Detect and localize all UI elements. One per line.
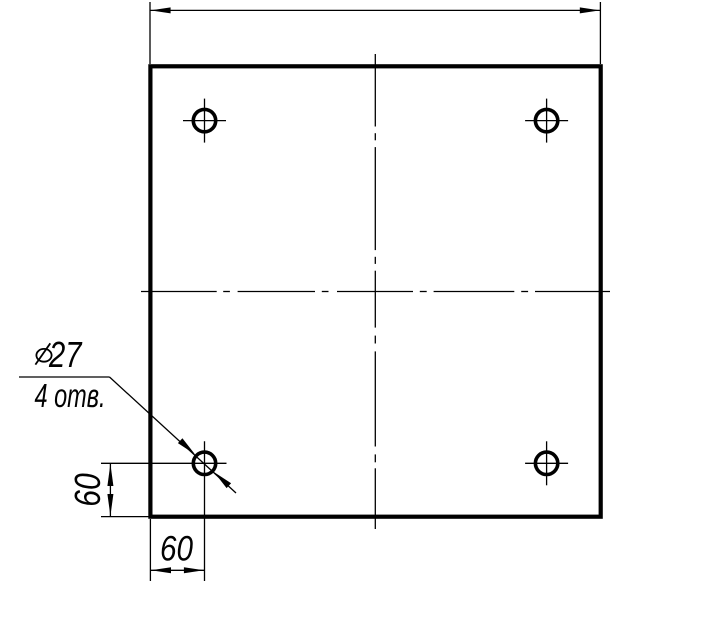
svg-text:4 отв.: 4 отв. — [35, 377, 106, 414]
svg-text:27: 27 — [48, 334, 83, 375]
svg-text:60: 60 — [160, 530, 193, 569]
svg-text:60: 60 — [67, 473, 108, 507]
